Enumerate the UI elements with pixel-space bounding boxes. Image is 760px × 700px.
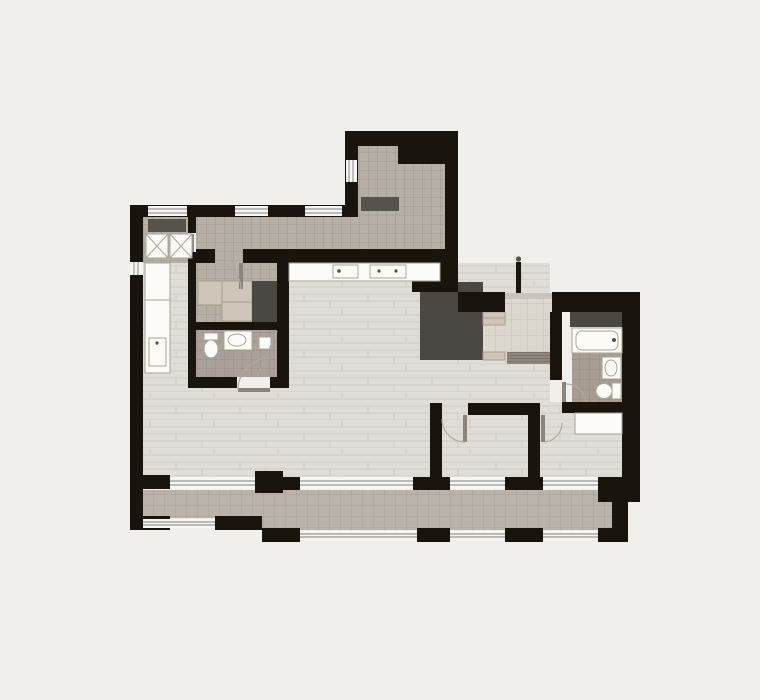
- window: [235, 206, 268, 216]
- dryer: [170, 234, 192, 258]
- bedroom-left-floor: [188, 388, 289, 477]
- floor-plan-page: [0, 0, 760, 700]
- balcony-railing: [143, 519, 215, 528]
- washbasin-main-bath: [602, 357, 621, 379]
- wall-bottom-seg: [215, 516, 262, 530]
- wall-bath-small-bottom-b: [270, 377, 289, 388]
- wall-hallway-a: [196, 249, 215, 263]
- kitchen-counter-top: [289, 263, 440, 281]
- balcony-door: [300, 477, 413, 489]
- hallway-floor: [196, 217, 445, 249]
- balcony-left-floor: [143, 490, 262, 518]
- cooktop: [370, 265, 406, 278]
- toilet-main-bath: [596, 383, 621, 399]
- door-leaf-bedroom-middle: [463, 415, 467, 442]
- balcony-railing: [300, 531, 417, 540]
- balcony-door: [543, 477, 598, 489]
- wall-bedroom-divider: [528, 415, 540, 477]
- porch-bench: [361, 197, 399, 211]
- burner: [377, 269, 380, 272]
- entry-door-knob: [516, 256, 521, 261]
- wall-utility-left: [188, 263, 196, 388]
- pillar: [413, 477, 450, 490]
- wall-balcony-step: [255, 471, 283, 493]
- storage-niche: [570, 312, 624, 327]
- balcony-railing: [450, 531, 505, 540]
- dressing-closet: [252, 281, 277, 322]
- wall-top-right-a: [458, 292, 505, 312]
- washbasin-small-bath: [224, 331, 252, 350]
- doormat: [507, 352, 550, 364]
- toilet-small-bath: [204, 333, 218, 358]
- window: [130, 262, 143, 275]
- entry-shelf-bottom: [483, 352, 505, 360]
- balcony-right-floor: [262, 490, 612, 530]
- bed-desk: [575, 413, 622, 434]
- washing-machine: [146, 234, 168, 258]
- window: [346, 160, 357, 182]
- tub-faucet: [612, 338, 616, 342]
- pillar: [283, 477, 300, 490]
- window: [148, 206, 187, 216]
- floor-plan-svg: [0, 0, 760, 700]
- door-leaf-bath-main: [562, 382, 566, 402]
- faucet: [155, 341, 158, 344]
- wall-bottom-seg: [505, 528, 543, 542]
- pillar: [505, 477, 543, 490]
- door-leaf-bedroom-right: [541, 415, 545, 442]
- balcony-railing: [543, 531, 598, 540]
- wall-bath-small-top: [196, 322, 277, 330]
- pillar: [143, 475, 170, 489]
- bathtub: [572, 328, 622, 353]
- wall-bottom-seg: [598, 528, 628, 542]
- wall-bath-main-bottom: [562, 402, 628, 413]
- wall-bath-small-bottom-a: [188, 377, 237, 388]
- wall-bottom-seg: [417, 528, 450, 542]
- door-leaf-bath-small: [238, 388, 270, 392]
- balcony-door: [170, 477, 255, 489]
- entry-vestibule-wing: [483, 325, 505, 352]
- burner: [394, 269, 397, 272]
- wall-porch-top: [345, 131, 458, 146]
- wall-bedroom-left: [430, 403, 442, 477]
- hallway-door-floor: [215, 249, 243, 263]
- wall-right: [622, 292, 640, 502]
- faucet: [337, 269, 341, 273]
- wall-laundry-a: [188, 217, 196, 233]
- wall-bedroom-top: [468, 403, 540, 415]
- wall-left: [130, 205, 143, 530]
- laundry-shelf: [148, 219, 186, 232]
- wall-porch-stub: [398, 146, 445, 164]
- kitchen-sink: [333, 265, 358, 278]
- wall-utility-right: [277, 263, 289, 388]
- entry-door-leaf: [516, 262, 521, 293]
- balcony-door: [450, 477, 505, 489]
- wall-bottom-seg: [262, 528, 300, 542]
- kitchen-counter-left: [145, 263, 170, 373]
- window: [305, 206, 342, 216]
- wall-vestibule-right: [550, 312, 562, 380]
- entry-threshold: [505, 293, 552, 299]
